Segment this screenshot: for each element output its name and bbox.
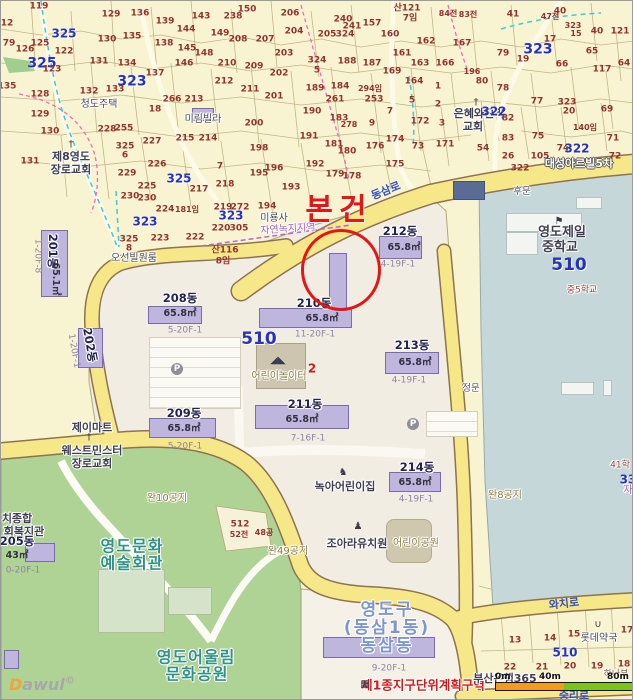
- map-label: 치종합: [2, 513, 32, 525]
- map-label: 132: [80, 87, 99, 96]
- watermark-rest: awul: [22, 675, 64, 694]
- map-label: 완49공지: [268, 547, 308, 558]
- map-label: 129: [31, 110, 50, 119]
- map-label: 213동: [395, 339, 430, 351]
- map-label: 143: [192, 12, 211, 21]
- map-label: 영도제일: [538, 226, 586, 240]
- map-label: 227: [143, 137, 162, 146]
- map-label: 자연녹지지역: [623, 486, 633, 497]
- map-label: 201: [265, 92, 284, 101]
- map-label: 7임: [403, 14, 418, 23]
- map-label: 510: [241, 331, 277, 349]
- map-label: 15: [568, 630, 581, 639]
- map-label: 15: [570, 30, 581, 38]
- map-label: 145: [178, 44, 197, 53]
- building-footprint: [576, 197, 602, 209]
- map-label: 230: [138, 194, 157, 203]
- map-label: 119: [30, 2, 49, 11]
- map-label: 215: [176, 134, 195, 143]
- map-label: 226: [148, 160, 167, 169]
- map-label: 77: [531, 97, 544, 106]
- map-label: 14: [544, 634, 557, 643]
- map-label: 322: [511, 164, 530, 173]
- map-label: 125: [31, 39, 50, 48]
- map-label: 117: [593, 65, 612, 74]
- map-label: 181임: [175, 206, 199, 214]
- map-label: 222: [186, 233, 205, 242]
- map-label: 210: [218, 59, 237, 68]
- map-label: 200: [245, 119, 264, 128]
- map-label: 144: [177, 25, 196, 34]
- map-label: 65.8㎡: [164, 309, 197, 319]
- map-label: 어린이공원: [393, 539, 439, 550]
- map-label: 180: [338, 147, 357, 156]
- map-label: 174: [386, 135, 405, 144]
- map-label: 중5학교: [567, 286, 598, 295]
- map-label: 214: [199, 134, 218, 143]
- church-cross-icon: †: [69, 140, 74, 150]
- map-label: 17: [621, 626, 633, 635]
- map-label: 교회: [463, 121, 483, 133]
- map-label: 184: [331, 82, 350, 91]
- map-label: 179: [326, 170, 345, 179]
- map-label: 133: [106, 85, 125, 94]
- map-label: 209: [245, 62, 264, 71]
- map-label: 135: [0, 82, 16, 91]
- parking-lot: [426, 411, 478, 437]
- map-label: 2: [435, 100, 441, 109]
- map-label: 193: [282, 183, 301, 192]
- map-label: 198: [250, 144, 269, 153]
- building-footprint: [506, 232, 538, 255]
- map-label: 121: [611, 27, 630, 36]
- map-label: 196: [265, 164, 284, 173]
- map-label: 164: [405, 77, 424, 86]
- map-label: 11-20F-1: [295, 330, 335, 339]
- map-label: 4-19F-1: [392, 376, 427, 385]
- map-label: 5-20F-1: [168, 442, 203, 451]
- map-label: 66: [556, 60, 569, 69]
- map-label: 동삼로: [370, 180, 402, 202]
- map-label: 211동: [288, 398, 323, 410]
- map-label: 어린이놀이터: [251, 372, 306, 383]
- map-label: 187: [363, 59, 382, 68]
- map-label: 54: [477, 144, 490, 153]
- map-label: 218: [216, 180, 235, 189]
- parking-icon: P: [407, 418, 419, 430]
- map-label: 13: [509, 636, 522, 645]
- map-label: 미림빌라: [185, 115, 222, 126]
- map-label: 83: [502, 134, 515, 143]
- map-label: 40: [591, 27, 604, 36]
- map-label: 238: [224, 12, 243, 21]
- map-label: 322: [564, 143, 589, 156]
- kindergarten-icon: ♟: [354, 522, 363, 532]
- map-label: 229: [118, 169, 137, 178]
- map-label: 323: [132, 216, 157, 229]
- map-label: 148: [195, 49, 214, 58]
- map-label: 동삼동: [361, 638, 414, 656]
- map-label: 녹아어린이집: [315, 481, 376, 493]
- map-label: 325: [51, 28, 76, 41]
- map-label: 211: [241, 85, 260, 94]
- map-label: 완10공지: [147, 494, 187, 505]
- building-footprint: [603, 380, 612, 396]
- map-label: 73: [412, 142, 425, 151]
- map-label: 8임: [216, 257, 231, 266]
- scale-tick-80: 80m: [607, 672, 629, 682]
- map-label: 137: [146, 69, 165, 78]
- scale-tick-40: 40m: [539, 672, 561, 682]
- map-label: 161: [393, 49, 412, 58]
- map-label: 139: [156, 17, 175, 26]
- map-label: 512: [231, 520, 250, 529]
- map-label: 65.1㎡: [50, 263, 60, 296]
- map-label: 203: [275, 49, 294, 58]
- map-label: 7-16F-1: [291, 434, 326, 443]
- building-footprint: [98, 569, 165, 633]
- map-label: 209동: [167, 407, 202, 419]
- map-label: 510: [551, 257, 587, 275]
- map-label: 65.8㎡: [388, 243, 421, 253]
- map-label: 79: [497, 49, 510, 58]
- map-label: 130: [98, 35, 117, 44]
- map-label: 청도주택: [81, 100, 118, 111]
- map-label: 40: [554, 7, 567, 16]
- map-label: 18: [149, 105, 162, 114]
- map-label: 9-20F-1: [372, 664, 407, 673]
- map-label: 325: [166, 173, 191, 186]
- map-label: 167: [453, 39, 472, 48]
- map-label: 207: [256, 35, 275, 44]
- map-label: 230: [121, 192, 140, 201]
- map-label: 65: [586, 47, 599, 56]
- map-label: 52전: [230, 531, 249, 539]
- map-label: 71: [607, 134, 620, 143]
- map-label: 0-20F-1: [6, 566, 41, 575]
- pharmacy-icon: ∪: [594, 620, 601, 630]
- map-label: 190: [303, 107, 322, 116]
- map-label: 213: [185, 95, 204, 104]
- map-label: 83전: [459, 11, 478, 19]
- map-label: 123: [43, 65, 62, 74]
- map-label: 225: [138, 182, 157, 191]
- map-label: 131: [21, 157, 40, 166]
- map-label: 175: [386, 160, 405, 169]
- map-label: 149: [211, 29, 230, 38]
- map-label: 4-19F-1: [381, 260, 416, 269]
- map-label: 중학교: [542, 241, 578, 255]
- map-label: 166: [436, 59, 455, 68]
- map-label: 7: [387, 107, 393, 116]
- map-label: 169: [383, 67, 402, 76]
- map-label: 웨스트민스터: [62, 445, 123, 457]
- map-label: 212동: [383, 225, 418, 237]
- map-label: 64: [618, 59, 631, 68]
- map-label: 72: [609, 152, 622, 161]
- playground-seesaw-icon: ◢◣: [270, 356, 285, 366]
- map-label: 192: [306, 160, 325, 169]
- map-label: 65.8㎡: [399, 478, 432, 488]
- school-flag-icon: ⚑: [555, 217, 564, 227]
- map-label: 253: [365, 95, 384, 104]
- map-label: 266: [163, 95, 182, 104]
- map-label: 와치로: [548, 597, 579, 612]
- map-label: 48공: [255, 529, 274, 537]
- map-label: 정문: [462, 384, 479, 394]
- map-label: 163: [411, 59, 430, 68]
- map-label: 미룡사: [260, 214, 288, 225]
- parking-lot: [149, 337, 241, 409]
- building-footprint: [453, 181, 485, 200]
- map-label: 140임: [573, 124, 597, 132]
- map-label: 6: [122, 151, 128, 160]
- map-label: 204: [285, 27, 304, 36]
- map-label: 19: [591, 662, 604, 671]
- map-label: 323: [218, 210, 243, 223]
- map-label: 26: [502, 152, 515, 161]
- map-label: 조아라유치원: [327, 538, 388, 550]
- map-label: 172: [411, 117, 430, 126]
- map-label: 5: [314, 66, 320, 75]
- map-label: 208: [229, 35, 248, 44]
- map-label: 제8영도: [52, 151, 90, 163]
- map-label: 205동: [0, 535, 34, 547]
- map-label: 장로교회: [51, 164, 91, 176]
- map-label: 65.8㎡: [306, 314, 339, 324]
- map-label: 220: [212, 224, 231, 233]
- map-label: 278: [341, 121, 358, 129]
- map-label: 134: [118, 59, 137, 68]
- map-label: 191: [300, 132, 319, 141]
- district-plan-icon: ▦: [360, 680, 369, 690]
- map-label: 43㎡: [6, 551, 29, 561]
- dawul-watermark: Dawul©: [9, 675, 75, 694]
- map-label: 294임: [358, 85, 382, 93]
- map-label: 65.8㎡: [286, 415, 319, 425]
- map-label: 122: [55, 47, 74, 56]
- map-label: 5-20F-1: [168, 326, 203, 335]
- church-cross-icon: †: [474, 98, 479, 108]
- map-label: 171: [436, 140, 455, 149]
- map-label: 160: [381, 30, 400, 39]
- map-label: 1: [435, 82, 441, 91]
- map-label: 510: [552, 647, 577, 660]
- scale-bar: 0m 40m 80m: [495, 672, 633, 694]
- scale-bar-segments: [495, 682, 633, 691]
- map-label: 12: [1, 19, 14, 28]
- church-cross-icon: †: [87, 433, 92, 443]
- map-label: 78: [497, 84, 510, 93]
- map-label: 224: [156, 205, 175, 214]
- map-label: 문화공원: [166, 667, 229, 684]
- map-label: 217: [190, 185, 209, 194]
- map-label: 69: [601, 105, 614, 114]
- map-label: 41: [507, 10, 520, 19]
- map-label: 214동: [400, 461, 435, 473]
- map-label: 예술회관: [101, 556, 164, 573]
- copyright-icon: ©: [65, 676, 75, 687]
- map-label: 65.8㎡: [168, 424, 201, 434]
- map-label: 대성아르빌5차: [545, 158, 613, 170]
- map-label: 4-19F-1: [399, 495, 434, 504]
- map-label: 제이마트: [72, 422, 112, 434]
- map-label: 롯데약국: [581, 634, 618, 645]
- map-label: 135: [123, 32, 142, 41]
- map-label: 장로교회: [72, 458, 112, 470]
- map-label: 138: [155, 39, 174, 48]
- map-label: 162: [417, 37, 436, 46]
- map-label: 84전: [439, 10, 458, 18]
- map-label: 후문: [513, 187, 530, 197]
- map-label: 130: [41, 127, 60, 136]
- map-label: 본건: [305, 194, 372, 226]
- map-root[interactable]: 1191291361391431441279126125122130135138…: [0, 0, 633, 700]
- map-label: 3: [439, 119, 445, 128]
- map-label: 324: [336, 30, 355, 39]
- map-label: 75: [532, 132, 545, 141]
- map-label: 80: [476, 77, 489, 86]
- map-label: 208동: [163, 292, 198, 304]
- map-label: 305: [230, 224, 249, 233]
- map-label: 136: [131, 9, 150, 18]
- map-label: 7: [217, 162, 223, 171]
- map-label: 188: [338, 57, 357, 66]
- map-label: 223: [151, 234, 170, 243]
- map-label: 212: [215, 77, 234, 86]
- map-label: 9: [369, 119, 375, 128]
- scale-tick-0: 0m: [495, 672, 511, 682]
- daycare-icon: ♞: [339, 468, 348, 478]
- map-label: 196: [464, 68, 481, 76]
- watermark-d: D: [9, 675, 22, 694]
- map-label: 176: [366, 142, 385, 151]
- map-label: 완8공지: [488, 491, 522, 502]
- map-label: 202: [270, 69, 289, 78]
- map-label: 146: [175, 59, 194, 68]
- map-label: 194: [258, 202, 277, 211]
- map-label: 128: [31, 90, 50, 99]
- map-label: 65.8㎡: [399, 358, 432, 368]
- map-label: 20: [563, 107, 576, 116]
- map-label: 79: [3, 39, 16, 48]
- building-footprint: [561, 382, 594, 395]
- map-label: 5: [409, 96, 415, 105]
- parking-icon: P: [171, 363, 183, 375]
- map-label: 131: [90, 57, 109, 66]
- map-label: 제1종지구단위계획구역: [361, 678, 485, 691]
- building-footprint: [168, 587, 212, 615]
- building-footprint: [4, 650, 19, 669]
- map-label: 41학: [610, 461, 630, 470]
- map-label: 오선빌원룸: [111, 254, 157, 265]
- map-label: 178: [343, 172, 362, 181]
- map-label: 129: [102, 10, 121, 19]
- map-label: 157: [363, 19, 382, 28]
- map-label: 189: [306, 84, 325, 93]
- map-label: 255: [115, 124, 134, 133]
- label-layer: 1191291361391431441279126125122130135138…: [1, 1, 633, 700]
- map-label: 261: [326, 95, 345, 104]
- map-label: 19: [517, 55, 530, 64]
- map-label: 228: [98, 125, 117, 134]
- map-label: 2: [308, 363, 316, 376]
- map-label: 205: [318, 30, 337, 39]
- subject-property-circle: [301, 229, 381, 311]
- map-label: 82: [502, 114, 515, 123]
- map-label: 20: [564, 662, 577, 671]
- map-label: 산116: [211, 246, 238, 255]
- map-label: 1-20F-8: [32, 239, 41, 274]
- map-label: 206: [281, 9, 300, 18]
